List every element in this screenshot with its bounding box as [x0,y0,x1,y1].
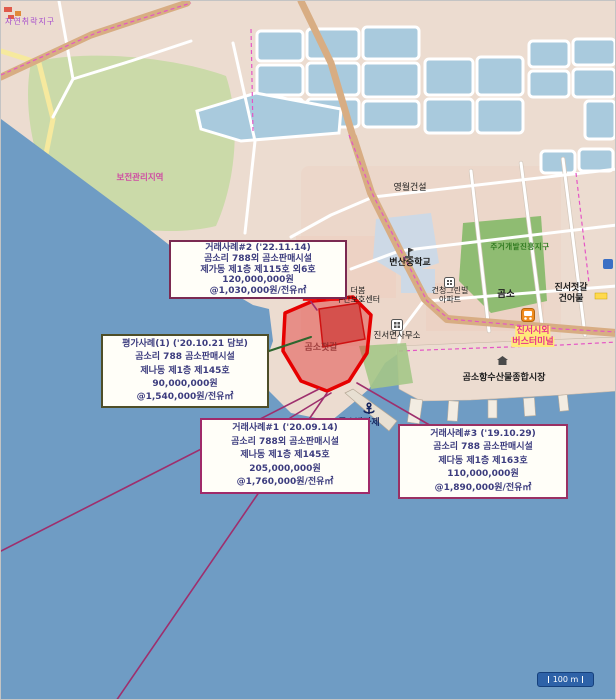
callout-line: 제나동 제1층 제145호 [202,449,368,463]
callout-line: 205,000,000원 [202,463,368,477]
callout-sale-case-3: 거래사례#3 ('19.10.29) 곰소리 788 곰소판매시설 제다동 제1… [398,424,568,499]
callout-line: @1,890,000원/전유㎡ [400,482,566,495]
callout-line: 90,000,000원 [103,378,267,391]
place-label-fish-market: 곰소항수산물종합시장 [463,373,546,384]
callout-line: @1,030,000원/전유㎡ [171,286,345,297]
callout-line: 곰소리 788 곰소판매시설 [103,351,267,364]
callout-sale-case-1: 거래사례#1 ('20.09.14) 곰소리 788외 곰소판매시설 제나동 제… [200,418,370,494]
scale-bar-tick [582,676,583,683]
callout-line: 곰소리 788외 곰소판매시설 [171,254,345,265]
zone-label-conservation: 보전관리지역 [117,173,164,183]
callout-line: 곰소리 788외 곰소판매시설 [202,436,368,450]
scale-bar-tick [548,676,549,683]
zone-label-residential-development: 주거개발진흥지구 [490,243,549,252]
place-label-jeotgal: 진서젓갈 건어물 [554,283,587,304]
callout-sale-case-2: 거래사례#2 ('22.11.14) 곰소리 788외 곰소판매시설 제가동 제… [169,240,347,299]
callout-line: @1,760,000원/전유㎡ [202,476,368,490]
callout-line: 제나동 제1층 제145호 [103,365,267,378]
place-label-gomso: 곰소 [497,289,514,300]
callout-line: 거래사례#1 ('20.09.14) [202,422,368,436]
callout-appraisal-case-1: 평가사례(1) ('20.10.21 담보) 곰소리 788 곰소판매시설 제나… [101,334,269,408]
place-label-township-office: 진서면사무소 [374,331,421,341]
callout-line: 제다동 제1층 제163호 [400,455,566,468]
callout-line: 110,000,000원 [400,468,566,481]
callout-line: @1,540,000원/전유㎡ [103,391,267,404]
callout-line: 120,000,000원 [171,275,345,286]
callout-line: 거래사례#2 ('22.11.14) [171,243,345,254]
callout-line: 제가동 제1층 제115호 외6호 [171,265,345,276]
place-label-apartment: 건청그린빌 아파트 [432,286,469,305]
place-label-school: 변산중학교 [389,258,430,269]
scale-bar-label: 100 m [553,675,579,684]
place-label-construction: 영월건설 [393,183,426,194]
place-label-bus-terminal: 진서시외 버스터미널 [511,326,554,347]
subject-area-label: 곰소젓갈 [304,340,337,353]
zone-label-natural-settlement: 자연취락지구 [5,17,55,26]
map-canvas[interactable]: 자연취락지구 보전관리지역 영월건설 주거개발진흥지구 변산중학교 더봄 주간보… [0,0,616,700]
callout-line: 평가사례(1) ('20.10.21 담보) [103,338,267,351]
scale-bar: 100 m [537,672,594,687]
callout-line: 곰소리 788 곰소판매시설 [400,441,566,454]
callout-line: 거래사례#3 ('19.10.29) [400,428,566,441]
